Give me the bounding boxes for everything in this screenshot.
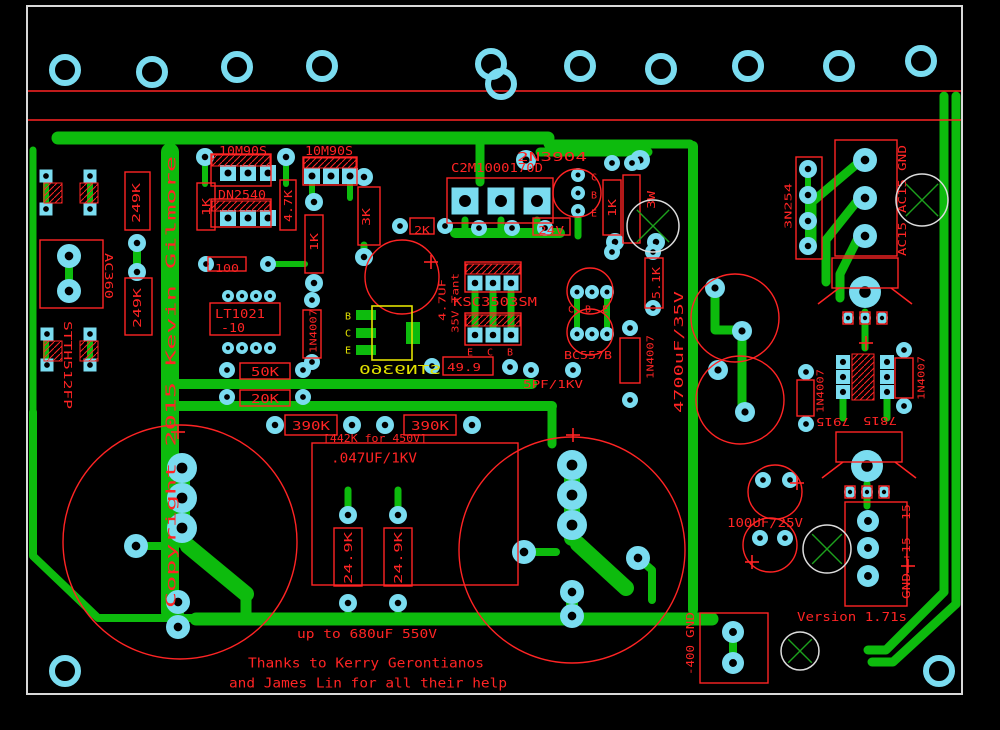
drill-hole bbox=[490, 332, 497, 339]
component-hatch bbox=[304, 158, 356, 168]
drill-hole bbox=[509, 225, 515, 231]
drill-hole bbox=[283, 154, 289, 160]
drill-hole bbox=[268, 346, 272, 350]
silk-label: LT1021 bbox=[215, 307, 265, 321]
drill-hole bbox=[627, 325, 633, 331]
silk-label: GND bbox=[896, 145, 909, 171]
drill-hole bbox=[634, 554, 643, 563]
drill-hole bbox=[567, 520, 578, 531]
drill-hole bbox=[567, 460, 578, 471]
drill-hole bbox=[300, 367, 306, 373]
drill-hole bbox=[803, 369, 809, 375]
drill-hole bbox=[268, 294, 272, 298]
silk-label: GND bbox=[684, 612, 697, 638]
drill-hole bbox=[840, 359, 846, 365]
silk-label: B bbox=[507, 348, 513, 359]
silk-label: 4700uF/35V bbox=[672, 291, 686, 413]
drill-hole bbox=[884, 359, 890, 365]
component-hatch bbox=[466, 315, 520, 326]
drill-hole bbox=[87, 206, 93, 212]
silk-label: E bbox=[345, 346, 351, 357]
drill-hole bbox=[575, 172, 580, 177]
drill-hole bbox=[469, 422, 475, 428]
silk-label: 3N254 bbox=[784, 183, 795, 229]
drill-hole bbox=[224, 394, 230, 400]
drill-hole bbox=[265, 261, 271, 267]
drill-hole bbox=[508, 280, 515, 287]
silk-label: 1N4007 bbox=[917, 356, 928, 400]
drill-hole bbox=[805, 218, 811, 224]
drill-hole bbox=[741, 408, 748, 415]
drill-hole bbox=[134, 269, 140, 275]
drill-hole bbox=[309, 359, 315, 365]
silk-label: C bbox=[345, 329, 351, 340]
drill-hole bbox=[627, 397, 633, 403]
drill-hole bbox=[760, 477, 766, 483]
drill-hole bbox=[803, 421, 809, 427]
drill-hole bbox=[782, 535, 788, 541]
silk-label: 49.9 bbox=[447, 361, 481, 374]
drill-hole bbox=[604, 331, 609, 336]
silk-label: 5.1K bbox=[650, 267, 663, 299]
silk-label: 24.9K bbox=[392, 531, 405, 584]
drill-hole bbox=[901, 347, 907, 353]
silk-label: E bbox=[467, 348, 473, 359]
silk-label: C bbox=[591, 173, 597, 184]
drill-hole bbox=[174, 623, 183, 632]
silk-label: 5PF/1KV bbox=[523, 378, 583, 391]
drill-hole bbox=[861, 232, 870, 241]
drill-hole bbox=[442, 223, 448, 229]
pcb-board: 10M90S10M90SDN25401K4.7K1K3K2K100249K249… bbox=[0, 0, 1000, 730]
silk-label: 50K bbox=[251, 365, 280, 379]
silk-label: 7915 bbox=[816, 415, 850, 428]
drill-hole bbox=[244, 169, 251, 176]
drill-hole bbox=[711, 284, 718, 291]
drill-hole bbox=[575, 208, 580, 213]
drill-hole bbox=[327, 172, 334, 179]
drill-hole bbox=[574, 331, 579, 336]
silk-label: B bbox=[585, 305, 591, 316]
copper-pad-rect bbox=[356, 328, 376, 338]
copper-pad-rect bbox=[406, 322, 420, 344]
drill-hole bbox=[345, 512, 351, 518]
drill-hole bbox=[882, 490, 886, 494]
drill-hole bbox=[589, 289, 594, 294]
drill-hole bbox=[864, 544, 872, 552]
drill-hole bbox=[226, 346, 230, 350]
drill-hole bbox=[43, 173, 49, 179]
drill-hole bbox=[244, 214, 251, 221]
silk-label: 24V bbox=[538, 224, 564, 237]
component-hatch bbox=[80, 341, 98, 361]
drill-hole bbox=[805, 243, 811, 249]
component-hatch bbox=[44, 341, 62, 361]
drill-hole bbox=[901, 403, 907, 409]
drill-hole bbox=[507, 364, 513, 370]
drill-hole bbox=[863, 316, 867, 320]
drill-hole bbox=[567, 490, 578, 501]
drill-hole bbox=[132, 542, 141, 551]
drill-hole bbox=[609, 249, 615, 255]
drill-hole bbox=[757, 535, 763, 541]
drill-hole bbox=[311, 199, 317, 205]
silk-label: .047UF/1KV bbox=[331, 452, 417, 467]
drill-hole bbox=[629, 160, 635, 166]
copper-pad-rect bbox=[356, 310, 376, 320]
drill-hole bbox=[43, 206, 49, 212]
drill-hole bbox=[311, 280, 317, 286]
drill-hole bbox=[848, 490, 852, 494]
drill-hole bbox=[570, 367, 576, 373]
drill-hole bbox=[472, 280, 479, 287]
drill-hole bbox=[395, 600, 401, 606]
drill-hole bbox=[254, 294, 258, 298]
drill-hole bbox=[714, 366, 721, 373]
silk-label: DN2540 bbox=[218, 188, 266, 202]
silk-label: E bbox=[602, 305, 608, 316]
drill-hole bbox=[87, 362, 93, 368]
component-hatch bbox=[212, 201, 270, 211]
silk-label: 4.7UF bbox=[438, 279, 449, 321]
silk-label: BC557B bbox=[564, 349, 612, 362]
silk-label: 2K bbox=[414, 224, 430, 237]
drill-hole bbox=[840, 374, 846, 380]
drill-hole bbox=[472, 332, 479, 339]
drill-hole bbox=[272, 422, 278, 428]
silk-label: Thanks to Kerry Gerontianos bbox=[248, 657, 484, 672]
drill-hole bbox=[224, 214, 231, 221]
drill-hole bbox=[884, 389, 890, 395]
silk-label: Copyright 2015 Kevin Gilmore bbox=[165, 156, 180, 608]
drill-hole bbox=[787, 477, 793, 483]
drill-hole bbox=[87, 331, 93, 337]
silk-label: -15 bbox=[900, 504, 913, 528]
drill-hole bbox=[880, 316, 884, 320]
silk-label: GND bbox=[900, 573, 913, 599]
drill-hole bbox=[729, 628, 737, 636]
silk-label: Version 1.71s bbox=[797, 610, 907, 624]
silk-label: AC360 bbox=[102, 253, 115, 299]
silk-label: C bbox=[487, 348, 493, 359]
component-hatch bbox=[80, 183, 98, 203]
silk-label: -400 bbox=[684, 645, 697, 675]
drill-hole bbox=[476, 225, 482, 231]
silk-label: KSC3503SM bbox=[453, 295, 537, 309]
drill-hole bbox=[568, 588, 577, 597]
drill-hole bbox=[508, 332, 515, 339]
drill-hole bbox=[65, 252, 74, 261]
drill-hole bbox=[531, 195, 543, 207]
drill-hole bbox=[495, 195, 507, 207]
silk-label: C bbox=[568, 305, 574, 316]
drill-hole bbox=[361, 254, 367, 260]
silk-label: 100 bbox=[215, 262, 239, 275]
drill-hole bbox=[202, 154, 208, 160]
silk-label: 3K bbox=[360, 207, 373, 226]
silk-label: AC15 bbox=[896, 222, 909, 256]
silk-label: 100UF/25V bbox=[727, 516, 803, 530]
drill-hole bbox=[224, 169, 231, 176]
component-hatch bbox=[466, 264, 520, 274]
silk-label: 20K bbox=[251, 392, 280, 406]
drill-hole bbox=[345, 600, 351, 606]
copper-pad-rect bbox=[356, 345, 376, 355]
drill-hole bbox=[604, 289, 609, 294]
silk-label: 10M90S bbox=[305, 144, 353, 158]
drill-hole bbox=[840, 389, 846, 395]
drill-hole bbox=[861, 156, 870, 165]
drill-hole bbox=[134, 240, 140, 246]
silk-label: STTH512FP bbox=[61, 321, 74, 410]
drill-hole bbox=[729, 659, 737, 667]
silk-label: 1N4007 bbox=[816, 369, 827, 413]
silk-label: 1K bbox=[308, 232, 321, 251]
drill-hole bbox=[574, 289, 579, 294]
drill-hole bbox=[349, 422, 355, 428]
silk-label: 1N4007 bbox=[309, 309, 320, 353]
drill-hole bbox=[224, 367, 230, 373]
drill-hole bbox=[65, 287, 74, 296]
silk-label: 1K bbox=[606, 198, 619, 217]
drill-hole bbox=[520, 548, 529, 557]
drill-hole bbox=[528, 367, 534, 373]
drill-hole bbox=[382, 422, 388, 428]
drill-hole bbox=[395, 512, 401, 518]
drill-hole bbox=[609, 160, 615, 166]
drill-hole bbox=[309, 297, 315, 303]
drill-hole bbox=[864, 572, 872, 580]
drill-hole bbox=[459, 195, 471, 207]
drill-hole bbox=[346, 172, 353, 179]
drill-hole bbox=[490, 280, 497, 287]
drill-hole bbox=[300, 394, 306, 400]
drill-hole bbox=[575, 190, 580, 195]
silk-label: 1N4007 bbox=[646, 335, 657, 379]
drill-hole bbox=[589, 331, 594, 336]
drill-hole bbox=[254, 346, 258, 350]
drill-hole bbox=[44, 331, 50, 337]
drill-hole bbox=[308, 172, 315, 179]
silk-label: 1K bbox=[200, 197, 213, 216]
silk-label: 249K bbox=[130, 182, 143, 223]
silk-label: 2N3904 bbox=[517, 150, 587, 164]
drill-hole bbox=[568, 612, 577, 621]
silk-label: STN9360 bbox=[359, 363, 441, 377]
component-hatch bbox=[44, 183, 62, 203]
silk-label: E bbox=[591, 209, 597, 220]
drill-hole bbox=[805, 192, 811, 198]
drill-hole bbox=[865, 490, 869, 494]
silk-label: B bbox=[591, 191, 597, 202]
component-hatch bbox=[852, 354, 874, 400]
silk-label: 249K bbox=[131, 287, 144, 328]
silk-label: +15 bbox=[900, 537, 913, 561]
drill-hole bbox=[846, 316, 850, 320]
drill-hole bbox=[87, 173, 93, 179]
silk-label: 4.7K bbox=[282, 190, 295, 222]
silk-label: 24.9K bbox=[342, 531, 355, 584]
silk-label: [442K for 450V] bbox=[323, 432, 427, 445]
silk-label: 10M90S bbox=[219, 144, 267, 158]
pcb-layout-viewport: 10M90S10M90SDN25401K4.7K1K3K2K100249K249… bbox=[0, 0, 1000, 730]
drill-hole bbox=[864, 517, 872, 525]
drill-hole bbox=[361, 174, 367, 180]
drill-hole bbox=[884, 374, 890, 380]
silk-label: -10 bbox=[221, 321, 245, 335]
silk-label: and James Lin for all their help bbox=[229, 677, 507, 692]
drill-hole bbox=[861, 194, 870, 203]
drill-hole bbox=[226, 294, 230, 298]
silk-label: B bbox=[345, 312, 351, 323]
drill-hole bbox=[397, 223, 403, 229]
silk-label: 7815 bbox=[863, 414, 897, 427]
silk-label: up to 680uF 550V bbox=[297, 627, 437, 641]
drill-hole bbox=[805, 166, 811, 172]
drill-hole bbox=[44, 362, 50, 368]
drill-hole bbox=[240, 346, 244, 350]
drill-hole bbox=[738, 327, 745, 334]
drill-hole bbox=[240, 294, 244, 298]
